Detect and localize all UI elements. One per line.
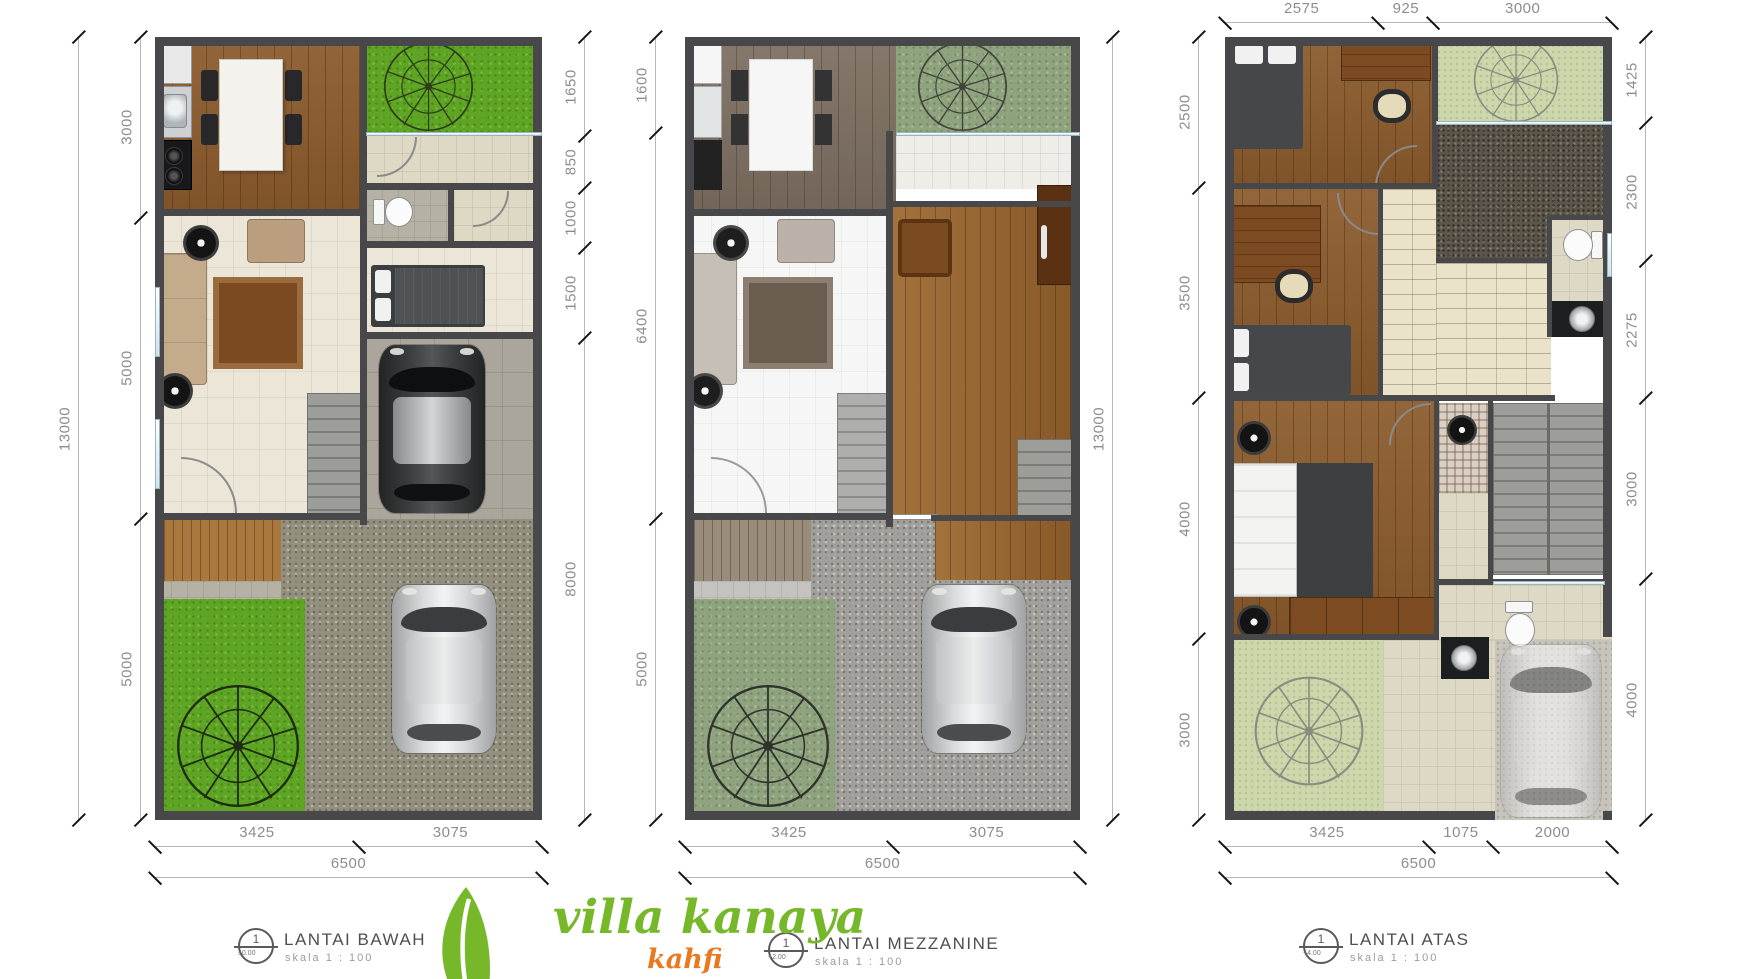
corridor-floor [1438, 493, 1488, 593]
desk [1341, 41, 1431, 81]
wall [685, 513, 890, 520]
plan-lantai-atas [1225, 37, 1612, 820]
garden-tree [381, 39, 476, 134]
brand-logo: villa kanaya kahfi [415, 876, 775, 979]
stool [1275, 269, 1313, 303]
wall [1436, 258, 1551, 263]
title-lantai-atas: 1 +4.00 LANTAI ATAS skala 1 : 100 [1303, 924, 1543, 974]
wall [155, 513, 366, 520]
plan-title: LANTAI BAWAH [284, 930, 426, 950]
dim-b-left-inner: 1600 6400 5000 [655, 37, 656, 820]
dim-a-right-inner: 1650 850 1000 1500 8000 [584, 37, 585, 820]
toilet-icon [1505, 613, 1535, 647]
wall [931, 515, 1080, 521]
rug [213, 277, 303, 369]
door-handle [1041, 225, 1047, 259]
wall [360, 37, 367, 525]
bed-pillow [1235, 45, 1263, 64]
logo-subtitle: kahfi [647, 944, 722, 975]
plan-lantai-mezzanine [685, 37, 1080, 820]
wall [1434, 399, 1439, 640]
car-silver [392, 585, 496, 753]
car-dark [379, 345, 485, 513]
window [366, 132, 542, 136]
hallway-floor [1436, 263, 1551, 399]
dining-chair [201, 70, 218, 101]
dim-c-top: 2575 925 3000 [1225, 22, 1612, 23]
roof-garden-tree [1471, 37, 1561, 125]
bed-pillow [1268, 45, 1296, 64]
wall [533, 37, 542, 820]
wall [155, 209, 367, 216]
wall [1225, 37, 1234, 820]
bed-blanket [395, 268, 483, 324]
sink-icon [1451, 645, 1477, 671]
bed-pillow [375, 298, 391, 321]
window [155, 419, 160, 489]
plan-scale: skala 1 : 100 [815, 956, 903, 968]
wall [155, 811, 542, 820]
sink-basin [163, 94, 187, 128]
terrace-deck [155, 519, 281, 581]
bed-pillow [375, 270, 391, 293]
wall [448, 189, 454, 247]
toilet-icon [1563, 229, 1593, 261]
window [896, 132, 1080, 136]
toilet-icon [385, 197, 413, 227]
level-marker-icon: 1 +4.00 [1303, 928, 1339, 964]
wall [1225, 634, 1438, 640]
wall [1603, 37, 1612, 637]
wall [886, 131, 893, 527]
plan-scale: skala 1 : 100 [285, 952, 373, 964]
mezzanine-armchair [898, 219, 952, 277]
wall [685, 37, 694, 820]
stove-burner [165, 167, 183, 185]
plant-pot [183, 225, 219, 261]
wall [1432, 37, 1438, 189]
wall [1551, 215, 1612, 220]
wall [1225, 811, 1495, 820]
stove-burner [165, 147, 183, 165]
window [1493, 581, 1605, 585]
dim-c-left-outer: 13000 [1112, 37, 1113, 820]
wall [360, 332, 542, 339]
wardrobe [1289, 597, 1435, 635]
dim-c-bottom: 3425 1075 2000 [1225, 846, 1612, 847]
level-marker-icon: 1 ±0.00 [238, 928, 274, 964]
dim-a-left-outer: 13000 [78, 37, 79, 820]
dim-b-bottom: 3425 3075 [685, 846, 1080, 847]
dim-a-left-inner: 3000 5000 5000 [140, 37, 141, 820]
sofa [159, 253, 207, 385]
wall [1488, 399, 1493, 585]
plant-pot [1237, 421, 1271, 455]
window [1436, 121, 1612, 125]
sink-icon [1569, 306, 1595, 332]
shower-drain-icon [1447, 415, 1477, 445]
dim-c-bottom-total: 6500 [1225, 877, 1612, 878]
wall [155, 37, 542, 46]
mezzanine-floor-lower [935, 520, 1080, 580]
wall [1225, 395, 1555, 401]
wall [1225, 183, 1436, 189]
car-silver [922, 585, 1026, 753]
dim-c-right-inner: 1425 2300 2275 3000 4000 [1645, 37, 1646, 820]
staircase [307, 393, 366, 519]
wall [890, 201, 1080, 207]
wall [1225, 37, 1612, 46]
car-ghost [1501, 645, 1601, 817]
plan-lantai-bawah [155, 37, 542, 820]
dining-chair [285, 114, 302, 145]
stool [1373, 89, 1411, 123]
dim-c-left-inner: 2500 3500 4000 3000 [1198, 37, 1199, 820]
bed-mattress [1233, 463, 1297, 597]
wall [1547, 215, 1552, 337]
dining-table [219, 59, 283, 171]
dining-chair [201, 114, 218, 145]
leaf-logo-icon [415, 878, 565, 979]
wall [1378, 189, 1383, 399]
wall [685, 811, 1080, 820]
plan-scale: skala 1 : 100 [1350, 952, 1438, 964]
dim-a-bottom: 3425 3075 [155, 846, 542, 847]
armchair [247, 219, 305, 263]
wall [685, 209, 893, 216]
wall [1603, 811, 1612, 820]
window [155, 287, 160, 357]
hallway-floor [1382, 189, 1436, 399]
rear-garden-tree [1251, 673, 1367, 789]
logo-name: villa kanaya [553, 890, 866, 945]
dining-chair [285, 70, 302, 101]
wall [1071, 37, 1080, 820]
wall [685, 37, 1080, 46]
toilet-icon [1505, 601, 1533, 613]
bed-blanket [1297, 463, 1373, 597]
plan-title: LANTAI ATAS [1349, 930, 1469, 950]
back-garden-tree [173, 681, 303, 811]
floor-plan-sheet: 13000 3000 5000 5000 1650 850 1000 1500 … [0, 0, 1740, 979]
window [1607, 233, 1612, 277]
terrace-step [155, 581, 281, 599]
toilet-icon [373, 199, 385, 225]
desk [1229, 205, 1321, 283]
mezzanine-stairs [1017, 439, 1075, 521]
stair-rail [1547, 403, 1550, 575]
